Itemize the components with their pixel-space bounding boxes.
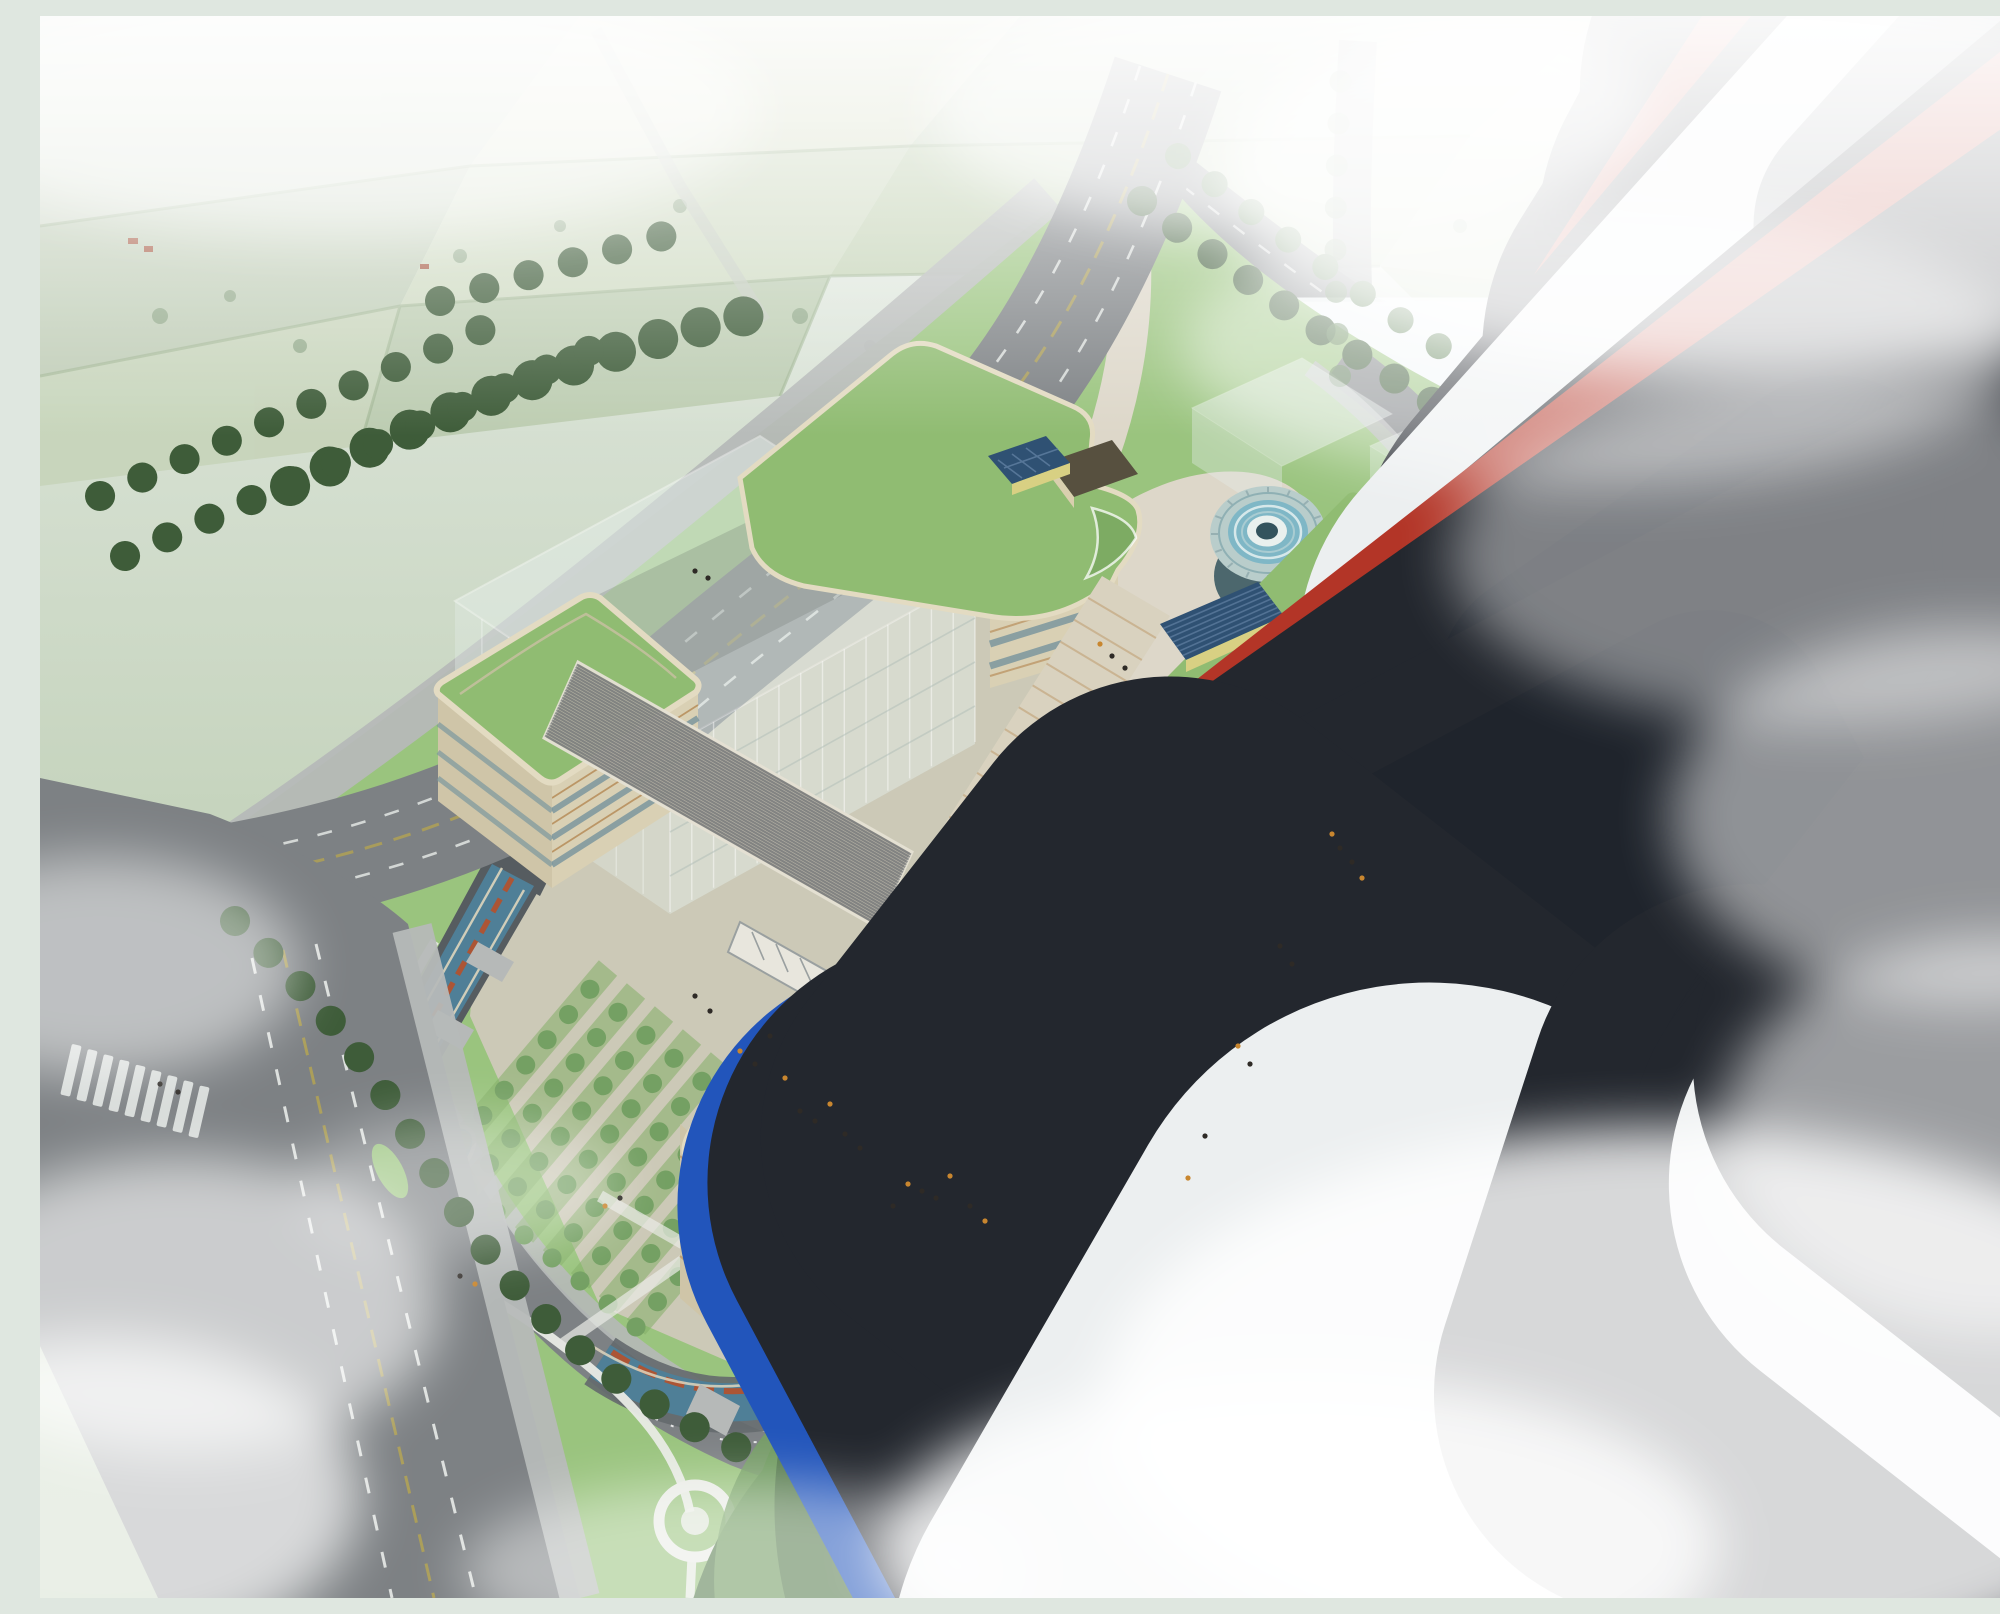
aerial-scene xyxy=(40,16,2000,1598)
architectural-rendering xyxy=(40,16,2000,1598)
